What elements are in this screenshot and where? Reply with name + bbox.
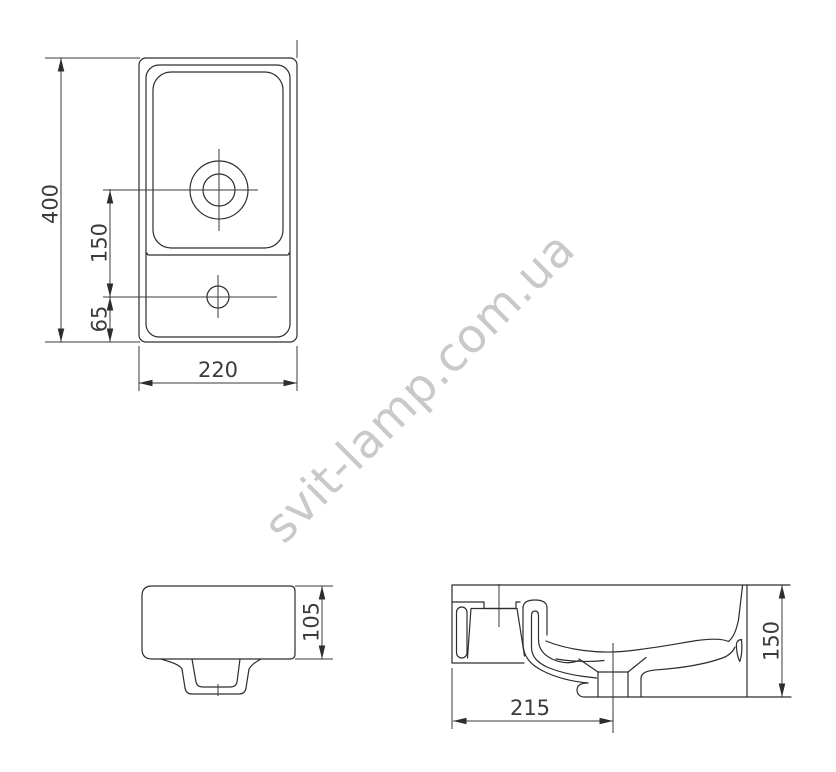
basin-rim-divider (147, 253, 289, 255)
dimension-220: 220 (139, 346, 297, 391)
dim-65-label: 65 (87, 306, 111, 333)
dimension-400: 400 (38, 58, 140, 342)
dim-arrow-right-icon (284, 380, 298, 387)
overflow-hook-outer (523, 600, 547, 643)
dim-150-section-label: 150 (759, 621, 783, 661)
dim-arrow-up-icon (779, 585, 786, 599)
body-outline (142, 586, 295, 659)
dim-arrow-down-icon (58, 329, 65, 343)
dim-arrow-down-icon (319, 646, 326, 660)
dim-220-label: 220 (198, 358, 238, 382)
dim-arrow-up-icon (107, 190, 114, 204)
channel-foot (577, 683, 588, 697)
dim-arrow-left-icon (139, 380, 153, 387)
right-wall-tip-sliver (736, 640, 741, 662)
dim-arrow-up-icon (319, 586, 326, 600)
dim-105-label: 105 (299, 602, 323, 642)
pedestal-inner-cavity (468, 609, 525, 659)
dim-150-label: 150 (87, 223, 111, 263)
drain-trap-outer-outline (161, 659, 261, 694)
section-view (452, 584, 791, 733)
dim-215-label: 215 (510, 696, 550, 720)
dim-arrow-right-icon (600, 718, 614, 725)
dimension-150-section: 150 (759, 585, 785, 697)
dimension-65: 65 (87, 297, 113, 342)
bowl-underside-right (641, 647, 735, 679)
dim-arrow-down-icon (779, 684, 786, 698)
dim-arrow-left-icon (453, 718, 467, 725)
drain-funnel-right (628, 658, 646, 673)
basin-inner-outline (153, 72, 283, 248)
overflow-hook-inner (532, 611, 539, 647)
tap-hole-section (484, 602, 516, 609)
washbasin-technical-drawing: svit-lamp.com.ua 400 150 65 (0, 0, 836, 772)
dim-arrow-up-icon (58, 58, 65, 72)
right-wall-inner-face (729, 586, 743, 642)
watermark-text: svit-lamp.com.ua (253, 221, 585, 553)
drawing-sheet: svit-lamp.com.ua 400 150 65 (0, 0, 836, 772)
overflow-channel-curve-outer (523, 643, 588, 683)
bowl-recess-far-edge (546, 639, 729, 652)
drain-trap-inner-outline (192, 659, 240, 687)
dim-arrow-down-icon (107, 284, 114, 298)
dim-400-label: 400 (38, 184, 62, 224)
left-wall-cavity-slot (457, 607, 468, 658)
dimension-105: 105 (295, 586, 333, 659)
top-view (103, 40, 297, 342)
side-view (142, 586, 295, 696)
